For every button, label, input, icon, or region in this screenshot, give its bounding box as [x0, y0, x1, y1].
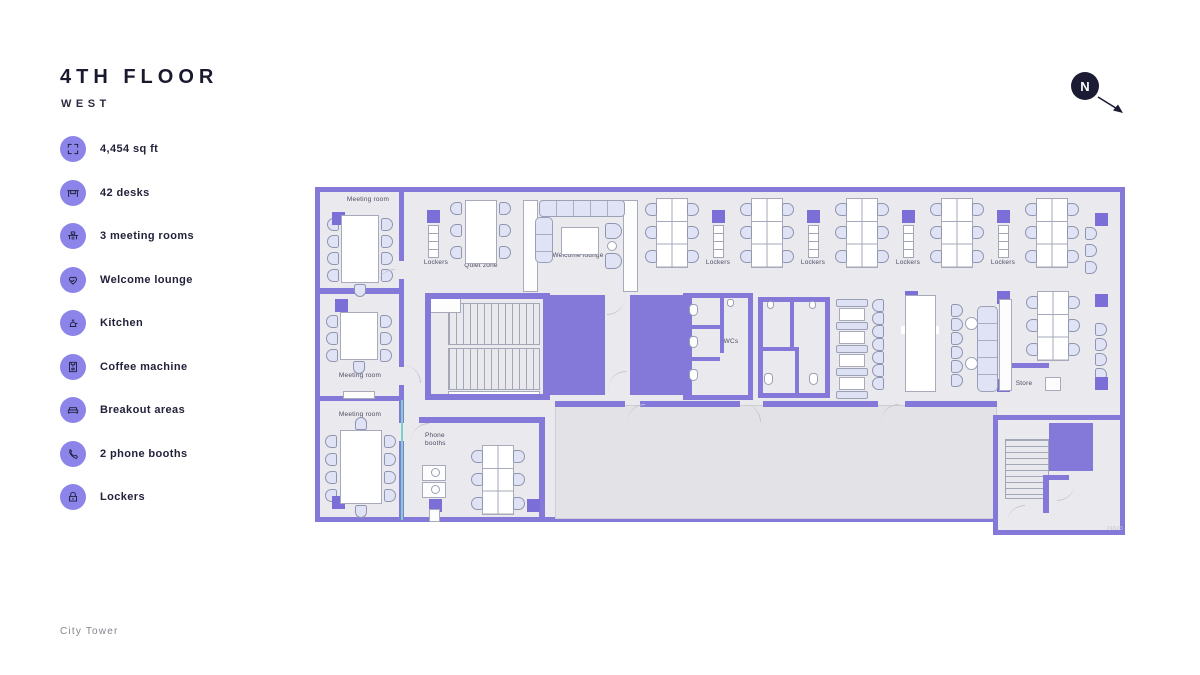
chair	[354, 284, 366, 297]
chair	[877, 203, 889, 216]
column	[997, 210, 1010, 223]
legend-item-kitchen: Kitchen	[60, 310, 194, 336]
floor-plan: Lift Lift Lift Lift Lift Meeting roo	[315, 187, 1125, 537]
legend-label: 4,454 sq ft	[100, 143, 158, 155]
building-name: City Tower	[60, 626, 119, 637]
chair	[325, 435, 337, 448]
armchair	[605, 223, 622, 239]
outside-demise-area	[555, 405, 997, 519]
desk-block	[751, 198, 783, 268]
chair	[1067, 226, 1079, 239]
chair	[471, 450, 483, 463]
chair	[326, 349, 338, 362]
wall	[761, 347, 799, 351]
chair	[513, 450, 525, 463]
wall	[555, 401, 625, 407]
chair	[782, 203, 794, 216]
side-table	[607, 241, 617, 251]
toilet	[809, 373, 818, 385]
chair	[872, 338, 884, 351]
chair	[835, 250, 847, 263]
round-table	[965, 357, 978, 370]
phone-booths-line1: Phone	[425, 432, 465, 440]
wall	[425, 293, 431, 400]
chair	[782, 226, 794, 239]
wall	[1043, 475, 1049, 513]
chair	[972, 203, 984, 216]
booth-table	[839, 377, 865, 390]
toilet	[764, 373, 773, 385]
chair	[1026, 343, 1038, 356]
wall	[688, 325, 720, 329]
locker-stack	[808, 225, 819, 258]
legend-label: Lockers	[100, 491, 145, 503]
chair	[1026, 296, 1038, 309]
wall	[748, 293, 753, 400]
chair	[835, 226, 847, 239]
desk-icon	[60, 180, 86, 206]
wall	[763, 401, 878, 407]
chair	[471, 497, 483, 510]
chair	[782, 250, 794, 263]
legend-item-lockers: Lockers	[60, 484, 194, 510]
legend-item-meeting-rooms: 3 meeting rooms	[60, 223, 194, 249]
column	[712, 210, 725, 223]
legend-label: 3 meeting rooms	[100, 230, 194, 242]
chair	[740, 250, 752, 263]
column	[1095, 294, 1108, 307]
locker-stack	[428, 225, 439, 258]
wall	[419, 417, 545, 423]
chair	[877, 250, 889, 263]
wall	[790, 302, 794, 351]
room-label-phone-booths: Phone booths	[425, 432, 465, 447]
chair	[353, 361, 365, 374]
chair	[450, 246, 462, 259]
breakout-icon	[60, 397, 86, 423]
counter	[999, 299, 1012, 391]
column	[1095, 377, 1108, 390]
compass-north-icon: N	[1058, 56, 1133, 122]
chair	[872, 299, 884, 312]
desk-block	[1036, 198, 1068, 268]
chair	[645, 250, 657, 263]
room-label-wcs: WCs	[711, 338, 751, 346]
legend-item-phone-booths: 2 phone booths	[60, 441, 194, 467]
column	[1095, 213, 1108, 226]
chair	[326, 332, 338, 345]
legend-label: Coffee machine	[100, 361, 188, 373]
booth-bench	[836, 322, 868, 330]
phone-booth-icon	[60, 441, 86, 467]
desk-cluster	[1026, 291, 1080, 361]
legend-item-welcome-lounge: Welcome lounge	[60, 267, 194, 293]
toilet	[689, 369, 698, 381]
chair	[450, 224, 462, 237]
wall	[425, 394, 550, 400]
booth-stool	[431, 468, 440, 477]
chair	[687, 203, 699, 216]
booth-stool	[431, 485, 440, 494]
booth-table	[839, 308, 865, 321]
area-icon	[60, 136, 86, 162]
desk-cluster	[471, 445, 525, 515]
round-table	[965, 317, 978, 330]
chair	[645, 203, 657, 216]
desk-cluster	[835, 198, 889, 268]
chair	[877, 226, 889, 239]
chair	[740, 226, 752, 239]
wall	[825, 297, 830, 398]
room-label-meeting-room: Meeting room	[337, 196, 399, 204]
room-label-lockers: Lockers	[700, 259, 736, 267]
chair	[1025, 250, 1037, 263]
chair	[645, 226, 657, 239]
desk-block	[1037, 291, 1069, 361]
banquette-sofa	[977, 306, 998, 392]
door-panel	[429, 509, 440, 522]
meeting-table	[340, 312, 378, 360]
booth-bench	[836, 299, 868, 307]
wall	[758, 393, 830, 398]
lounge-sofa	[535, 217, 553, 263]
phone-booths-line2: booths	[425, 440, 465, 448]
chair	[687, 250, 699, 263]
locker-stack	[713, 225, 724, 258]
wall	[795, 347, 799, 393]
meeting-room-icon	[60, 223, 86, 249]
desk-cluster	[740, 198, 794, 268]
kitchen-icon	[60, 310, 86, 336]
legend-label: 42 desks	[100, 187, 150, 199]
wall	[683, 293, 688, 400]
booth-table	[839, 354, 865, 367]
legend-label: Breakout areas	[100, 404, 185, 416]
lobby-vestibule	[427, 297, 461, 313]
kitchen-island	[905, 295, 936, 392]
coffee-table	[561, 227, 599, 255]
chair	[740, 203, 752, 216]
toilet	[689, 304, 698, 316]
glass-partition	[401, 400, 403, 520]
chair	[930, 203, 942, 216]
chair	[355, 417, 367, 430]
legend-item-desks: 42 desks	[60, 180, 194, 206]
chair	[872, 351, 884, 364]
toilet	[689, 336, 698, 348]
chair	[1067, 203, 1079, 216]
wall	[640, 401, 740, 407]
booth-bench	[836, 368, 868, 376]
chair	[1026, 319, 1038, 332]
sink	[767, 301, 774, 309]
booth-bench	[836, 391, 868, 399]
chair	[687, 226, 699, 239]
room-label-lockers: Lockers	[795, 259, 831, 267]
store-shelf	[1045, 377, 1061, 391]
column	[902, 210, 915, 223]
wall	[683, 395, 753, 400]
chair	[327, 269, 339, 282]
desk-cluster	[645, 198, 699, 268]
chair	[1068, 296, 1080, 309]
column	[807, 210, 820, 223]
chair	[872, 364, 884, 377]
stairs	[448, 348, 540, 390]
chair	[513, 473, 525, 486]
armchair	[605, 253, 622, 269]
welcome-lounge-icon	[60, 267, 86, 293]
chair	[972, 250, 984, 263]
chair	[327, 252, 339, 265]
legend-item-breakout: Breakout areas	[60, 397, 194, 423]
stairs	[448, 303, 540, 345]
locker-stack	[903, 225, 914, 258]
booth-table	[839, 331, 865, 344]
room-label-lockers: Lockers	[985, 259, 1021, 267]
quiet-zone-table	[465, 200, 497, 264]
chair	[930, 226, 942, 239]
column-strip	[623, 200, 638, 292]
wall	[720, 298, 724, 353]
wall	[683, 293, 753, 298]
page: 4TH FLOOR WEST N 4,454 sq ft 42 desks 3 …	[0, 0, 1200, 675]
meeting-table	[341, 215, 379, 283]
sink	[727, 299, 734, 307]
sink	[809, 301, 816, 309]
chair	[835, 203, 847, 216]
chair	[326, 315, 338, 328]
chair	[872, 377, 884, 390]
legend-item-coffee-machine: Coffee machine	[60, 354, 194, 380]
desk-cluster	[1025, 198, 1079, 268]
chair	[325, 471, 337, 484]
legend-label: Kitchen	[100, 317, 143, 329]
chair	[450, 202, 462, 215]
chair	[1068, 319, 1080, 332]
chair	[872, 325, 884, 338]
wall	[425, 293, 550, 299]
desk-block	[846, 198, 878, 268]
desk-block	[656, 198, 688, 268]
wall	[399, 187, 404, 261]
wall	[1049, 475, 1069, 480]
legend-label: Welcome lounge	[100, 274, 193, 286]
room-label-store: Store	[1007, 380, 1041, 388]
compass-label: N	[1080, 79, 1089, 94]
legend-label: 2 phone booths	[100, 448, 187, 460]
booth-bench	[836, 345, 868, 353]
chair	[513, 497, 525, 510]
desk-cluster	[930, 198, 984, 268]
wall	[905, 401, 997, 407]
wall	[399, 279, 404, 367]
chair	[325, 453, 337, 466]
meeting-table	[340, 430, 382, 504]
wall	[688, 357, 720, 361]
chair	[1067, 250, 1079, 263]
chair	[1068, 343, 1080, 356]
legend-item-area: 4,454 sq ft	[60, 136, 194, 162]
column	[527, 499, 540, 512]
chair	[327, 235, 339, 248]
chair	[471, 473, 483, 486]
desk-block	[941, 198, 973, 268]
wall	[543, 295, 605, 395]
chair	[1025, 203, 1037, 216]
chair	[872, 312, 884, 325]
plan-reference-code: 24N03	[1085, 526, 1123, 532]
lockers-icon	[60, 484, 86, 510]
column	[335, 299, 348, 312]
page-title: 4TH FLOOR	[60, 66, 218, 89]
lounge-sofa	[539, 200, 625, 217]
coffee-machine-icon	[60, 354, 86, 380]
legend: 4,454 sq ft 42 desks 3 meeting rooms Wel…	[60, 136, 194, 510]
desk-block	[482, 445, 514, 515]
column	[427, 210, 440, 223]
chair	[1025, 226, 1037, 239]
locker-stack	[998, 225, 1009, 258]
page-subtitle: WEST	[61, 98, 111, 110]
chair	[930, 250, 942, 263]
room-label-lockers: Lockers	[890, 259, 926, 267]
chair	[972, 226, 984, 239]
door-panel	[343, 391, 375, 399]
wall	[1049, 423, 1093, 471]
chair	[355, 505, 367, 518]
